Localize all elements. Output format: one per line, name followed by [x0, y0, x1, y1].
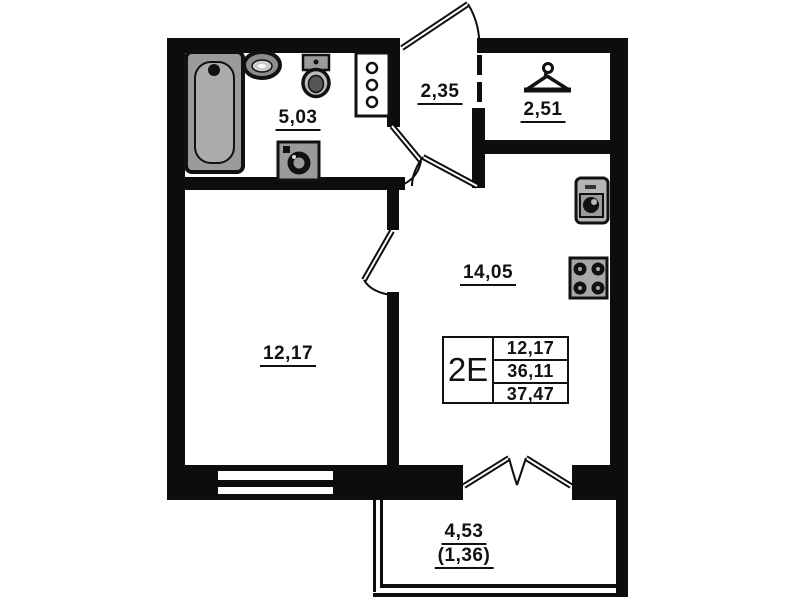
unit-type-label: 2E [444, 338, 494, 402]
wall-wardrobe-bottom [485, 140, 610, 154]
wall-partition-upper [387, 190, 399, 230]
balcony-coefficient-area-label: (1,36) [435, 546, 494, 569]
floor-plan: 5,03 2,35 2,51 14,05 12,17 4,53 (1,36) 2… [0, 0, 799, 600]
bedroom-door [364, 231, 392, 295]
window-frame-line [218, 465, 333, 471]
balcony-wall-bottom-outer [373, 593, 618, 597]
stove-icon [570, 258, 607, 298]
wall-partition-lower [387, 292, 399, 465]
balcony-wall-right [616, 500, 628, 597]
unit-info-card: 2E 12,17 36,11 37,47 [442, 336, 569, 404]
dashed-divider [477, 55, 482, 75]
bedroom-area-label: 12,17 [260, 344, 316, 367]
wall-bottom-right [572, 465, 628, 500]
bathroom-door [392, 126, 421, 184]
dashed-divider [477, 82, 482, 102]
wall-bottom-mid [333, 465, 463, 500]
kitchen-living-area-label: 14,05 [460, 263, 516, 286]
window [218, 465, 333, 500]
wall-right [610, 38, 628, 500]
wall-hall-stub [472, 108, 485, 188]
floor-plan-drawing [0, 0, 799, 600]
window-frame-line [218, 480, 333, 487]
balcony-wall-left-outer [373, 500, 376, 592]
hallway-area-label: 2,35 [418, 82, 463, 105]
wall-left [167, 38, 185, 500]
ventilation-shaft-icon [356, 53, 389, 116]
hanger-icon [524, 64, 571, 91]
balcony-area-label: 4,53 [442, 522, 487, 545]
unit-living-area: 12,17 [494, 338, 567, 361]
bathroom-area-label: 5,03 [276, 108, 321, 131]
wardrobe-area-label: 2,51 [521, 100, 566, 123]
toilet-icon [303, 55, 329, 97]
balcony-wall-bottom-inner [380, 584, 618, 588]
unit-area-rows: 12,17 36,11 37,47 [494, 338, 567, 402]
wall-top-right [477, 38, 628, 53]
bathtub-icon [186, 52, 243, 172]
unit-total-area: 37,47 [494, 384, 567, 405]
kitchen-sink-icon [576, 178, 608, 223]
door-swing-arc [364, 280, 391, 295]
washing-machine-icon [278, 142, 319, 180]
door-swing-arc [517, 458, 526, 485]
wall-bottom-left [167, 465, 218, 500]
unit-area: 36,11 [494, 361, 567, 384]
entrance-door [402, 4, 479, 51]
window-frame-line [218, 494, 333, 500]
sink-icon [244, 52, 280, 78]
balcony-wall-left-inner [380, 500, 383, 586]
balcony-outline [373, 500, 628, 597]
door-swing-arc [509, 458, 517, 485]
balcony-french-doors [464, 458, 571, 486]
